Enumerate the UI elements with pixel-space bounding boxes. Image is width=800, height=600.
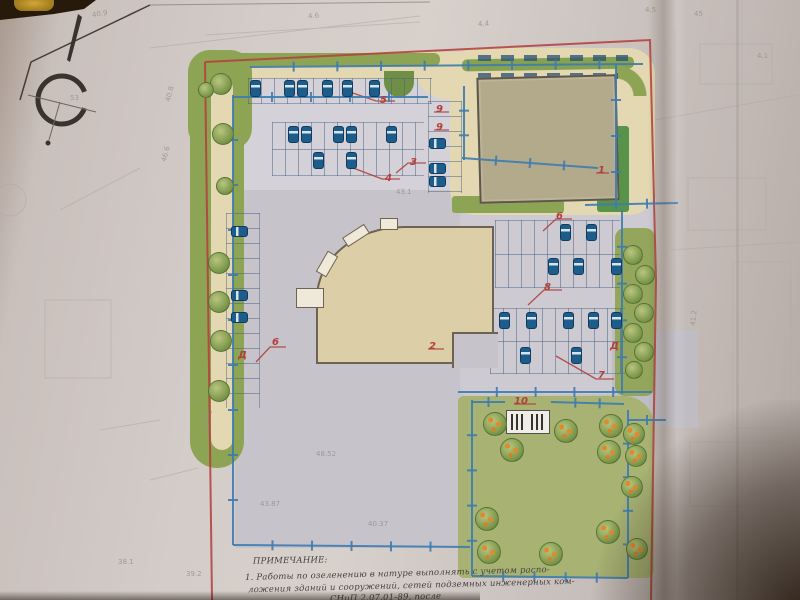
car-symbol <box>231 226 248 237</box>
car-symbol <box>429 138 446 149</box>
tree-symbol <box>198 82 214 98</box>
fruit-tree-symbol <box>477 540 501 564</box>
callout-number: Д <box>610 341 619 352</box>
callout-number: 3 <box>410 157 417 168</box>
callout-number: 5 <box>380 95 387 106</box>
fruit-tree-symbol <box>483 412 507 436</box>
car-symbol <box>611 258 622 275</box>
building-2-porch-4 <box>296 288 324 308</box>
car-symbol <box>369 80 380 97</box>
survey-elevation-mark: 4.4 <box>478 20 490 29</box>
callout-number: 7 <box>598 370 605 381</box>
survey-elevation-mark: 53 <box>70 94 79 102</box>
car-symbol <box>297 80 308 97</box>
note-text-line: ПРИМЕЧАНИЕ: <box>253 555 328 566</box>
photo-of-site-plan-drawing: 54399126Д68Д71040.94.64.4454.140.846.643… <box>0 0 800 600</box>
car-symbol <box>301 126 312 143</box>
tree-symbol <box>635 265 655 285</box>
survey-elevation-mark: 43.87 <box>260 500 280 508</box>
callout-number: 9 <box>436 122 443 133</box>
building-1 <box>476 74 619 204</box>
survey-elevation-mark: 4.5 <box>645 6 656 14</box>
fruit-tree-symbol <box>500 438 524 462</box>
survey-elevation-mark: 4.6 <box>308 12 320 21</box>
stall-midline <box>490 341 625 342</box>
car-symbol <box>571 347 582 364</box>
tree-symbol <box>208 252 230 274</box>
callout-number: 6 <box>556 211 563 222</box>
building-2-porch-1 <box>380 218 398 230</box>
parking-stalls <box>226 213 260 408</box>
car-symbol <box>520 347 531 364</box>
paver-dashes-1 <box>478 55 628 61</box>
paper-sheet: 54399126Д68Д71040.94.64.4454.140.846.643… <box>0 0 800 600</box>
survey-elevation-mark: 45 <box>694 10 703 18</box>
stall-midline <box>272 149 424 150</box>
car-symbol <box>231 312 248 323</box>
fruit-tree-symbol <box>596 520 620 544</box>
car-symbol <box>499 312 510 329</box>
stall-midline <box>495 254 620 255</box>
pergola-hatch-left <box>511 414 526 430</box>
car-symbol <box>322 80 333 97</box>
car-symbol <box>342 80 353 97</box>
survey-elevation-mark: 41.2 <box>689 310 698 326</box>
car-symbol <box>611 312 622 329</box>
paper-crease <box>736 0 739 600</box>
survey-elevation-mark: 40.37 <box>368 520 388 528</box>
car-symbol <box>586 224 597 241</box>
tree-symbol <box>212 123 234 145</box>
survey-elevation-mark: 39.2 <box>186 570 202 578</box>
fruit-tree-symbol <box>597 440 621 464</box>
fruit-tree-symbol <box>539 542 563 566</box>
car-symbol <box>284 80 295 97</box>
survey-elevation-mark: 38.1 <box>118 558 134 566</box>
pergola-hatch-right <box>531 414 546 430</box>
parking-stalls <box>495 220 620 288</box>
survey-elevation-mark: 48.52 <box>316 450 336 458</box>
pergola-structure <box>506 410 550 434</box>
tree-symbol <box>208 380 230 402</box>
tree-symbol <box>208 291 230 313</box>
car-symbol <box>429 163 446 174</box>
car-symbol <box>231 290 248 301</box>
building-2-notch <box>452 332 498 368</box>
callout-number: 6 <box>272 337 279 348</box>
tree-symbol <box>216 177 234 195</box>
fruit-tree-symbol <box>626 538 648 560</box>
north-compass <box>28 14 96 146</box>
car-symbol <box>526 312 537 329</box>
car-symbol <box>250 80 261 97</box>
callout-number: 1 <box>598 165 605 176</box>
car-symbol <box>560 224 571 241</box>
callout-number: 2 <box>429 341 436 352</box>
fruit-tree-symbol <box>621 476 643 498</box>
tree-symbol <box>210 330 232 352</box>
car-symbol <box>346 152 357 169</box>
callout-number: 4 <box>385 173 392 184</box>
car-symbol <box>563 312 574 329</box>
car-symbol <box>429 176 446 187</box>
fruit-tree-symbol <box>599 414 623 438</box>
tree-symbol <box>634 342 654 362</box>
fruit-tree-symbol <box>475 507 499 531</box>
tree-symbol <box>623 284 643 304</box>
fruit-tree-symbol <box>625 445 647 467</box>
callout-number: 8 <box>544 282 551 293</box>
car-symbol <box>333 126 344 143</box>
car-symbol <box>313 152 324 169</box>
callout-number: Д <box>238 350 247 361</box>
car-symbol <box>573 258 584 275</box>
fruit-tree-symbol <box>554 419 578 443</box>
parking-stalls <box>248 78 432 104</box>
survey-elevation-mark: 4.1 <box>757 52 768 60</box>
car-symbol <box>548 258 559 275</box>
green-strip-top <box>200 53 440 66</box>
fruit-tree-symbol <box>623 423 645 445</box>
callout-number: 9 <box>436 104 443 115</box>
tree-symbol <box>625 361 643 379</box>
callout-number: 10 <box>514 396 528 407</box>
tree-symbol <box>623 245 643 265</box>
car-symbol <box>346 126 357 143</box>
survey-elevation-mark: 43.1 <box>396 188 412 196</box>
tree-symbol <box>623 323 643 343</box>
parking-stalls <box>490 308 625 374</box>
car-symbol <box>386 126 397 143</box>
car-symbol <box>588 312 599 329</box>
car-symbol <box>288 126 299 143</box>
tree-symbol <box>634 303 654 323</box>
